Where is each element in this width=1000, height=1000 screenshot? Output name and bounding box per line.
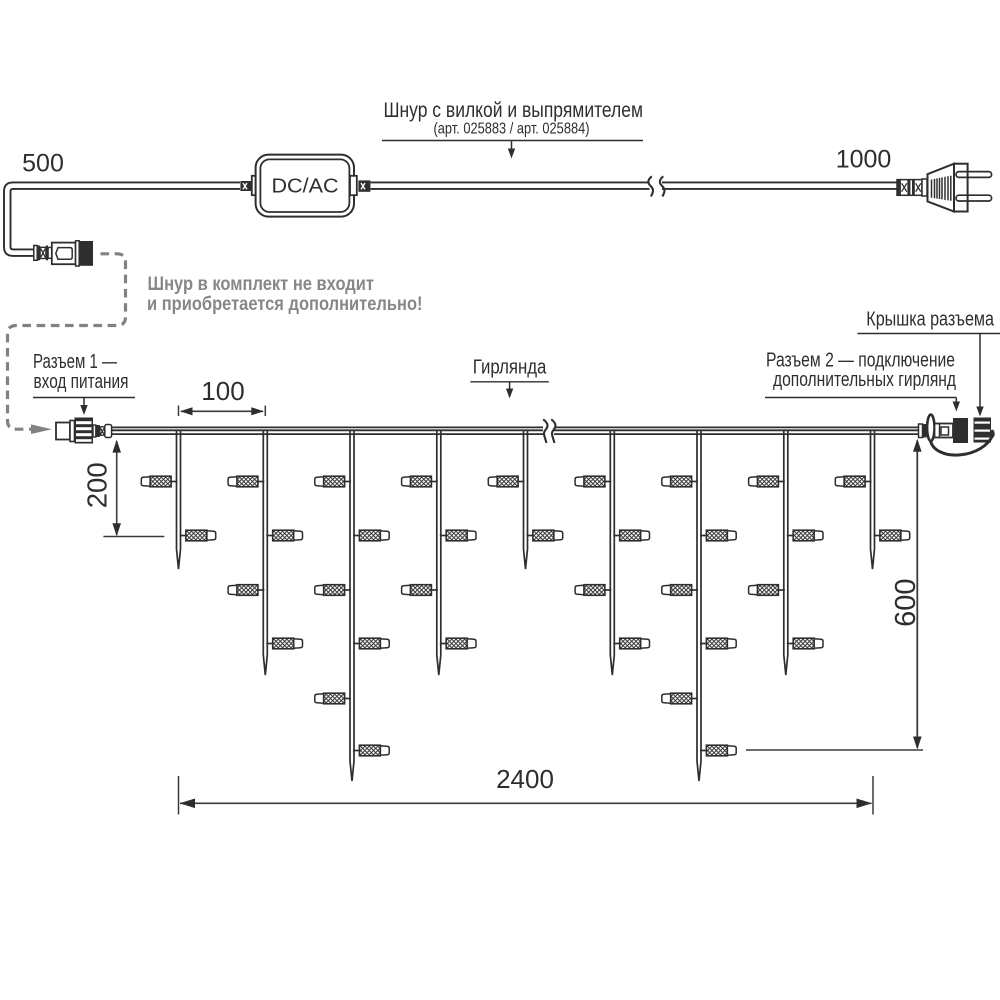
svg-text:и приобретается дополнительно!: и приобретается дополнительно! [147, 293, 423, 315]
svg-text:Шнур с вилкой и выпрямителем: Шнур с вилкой и выпрямителем [384, 99, 644, 122]
svg-text:DC/AC: DC/AC [272, 176, 339, 198]
svg-text:2400: 2400 [496, 764, 554, 794]
svg-text:100: 100 [201, 376, 244, 406]
svg-text:Крышка разъема: Крышка разъема [866, 309, 994, 331]
svg-text:Шнур в комплект не входит: Шнур в комплект не входит [148, 273, 375, 295]
svg-text:Гирлянда: Гирлянда [473, 357, 547, 379]
svg-text:вход питания: вход питания [34, 371, 129, 393]
svg-text:200: 200 [82, 462, 113, 508]
svg-text:500: 500 [22, 150, 64, 178]
svg-text:1000: 1000 [836, 146, 892, 174]
svg-text:Разъем 1 —: Разъем 1 — [33, 351, 117, 373]
svg-text:дополнительных гирлянд: дополнительных гирлянд [773, 369, 956, 391]
svg-text:(арт. 025883 / арт. 025884): (арт. 025883 / арт. 025884) [434, 121, 590, 138]
